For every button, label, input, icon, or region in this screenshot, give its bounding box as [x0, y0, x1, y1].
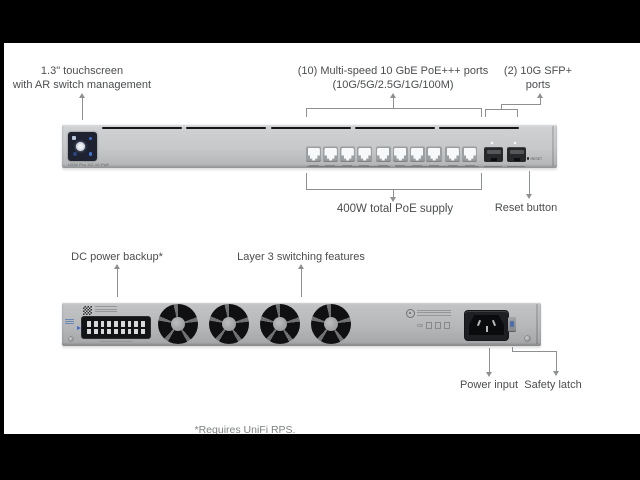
- touchscreen-corner-icon: [89, 152, 93, 156]
- layer3-annotation: Layer 3 switching features: [201, 250, 401, 264]
- dc-pin: [114, 321, 118, 327]
- dc-pin: [94, 321, 98, 327]
- vent-slot: [102, 127, 182, 129]
- vent-slot: [439, 127, 519, 129]
- reset-annotation: Reset button: [466, 201, 586, 215]
- dc-pin: [141, 321, 145, 327]
- dc-pin: [107, 321, 111, 327]
- dc-pin: [134, 329, 138, 335]
- poe-ports-annotation-line1: (10) Multi-speed 10 GbE PoE+++ ports: [283, 64, 503, 78]
- rps-sticker: [65, 319, 79, 333]
- dc-pin: [134, 321, 138, 327]
- dc-pins: [87, 321, 145, 334]
- inlet-cavity: [469, 315, 504, 335]
- dc-pin: [94, 329, 98, 335]
- letterbox-left: [0, 0, 4, 480]
- port-label-strip: [307, 166, 390, 167]
- dc-pin: [121, 321, 125, 327]
- fan-icon: [158, 304, 198, 344]
- leader-line: [489, 348, 490, 373]
- ubiquiti-logo: [406, 309, 415, 318]
- touchscreen-corner-icon: [89, 137, 92, 140]
- fan-icon: [209, 304, 249, 344]
- sfp-led-icon: [491, 142, 493, 144]
- sfp-ports-annotation-line1: (2) 10G SFP+: [488, 64, 588, 78]
- poe-bracket-tick: [306, 108, 307, 117]
- power-inlet: [465, 311, 508, 340]
- cert-icon: [435, 322, 442, 329]
- rj45-jack: [341, 148, 353, 161]
- sfp-port: [484, 147, 503, 162]
- rj45-port: [393, 146, 408, 162]
- label-text-lines: [95, 306, 117, 314]
- rj45-jack: [358, 148, 370, 161]
- leader-line: [512, 351, 557, 352]
- sfp-label-strip: [484, 166, 502, 167]
- dc-pin: [114, 329, 118, 335]
- sfp-tab: [491, 158, 497, 161]
- letterbox-top: [0, 0, 640, 43]
- sfp-bracket-tick: [517, 109, 518, 117]
- arrowhead: [553, 371, 559, 376]
- rj45-ports: [306, 146, 477, 162]
- sfp-port: [507, 147, 526, 162]
- screw-icon: [69, 337, 73, 341]
- vent-slot: [186, 127, 266, 129]
- dc-pin: [107, 329, 111, 335]
- rj45-port-group: [376, 146, 442, 162]
- fan-icon: [311, 304, 351, 344]
- dc-power-connector: [82, 317, 150, 338]
- rj45-port: [376, 146, 391, 162]
- rj45-port: [426, 146, 441, 162]
- rj45-port: [445, 146, 460, 162]
- rj45-jack: [447, 148, 459, 161]
- touchscreen: [68, 132, 97, 161]
- sfp-bracket: [485, 109, 518, 110]
- arrow-right-icon: [77, 326, 81, 330]
- touchscreen-annotation: 1.3" touchscreen with AR switch manageme…: [0, 64, 164, 92]
- dc-pin: [101, 329, 105, 335]
- rj45-jack: [411, 148, 423, 161]
- rj45-port: [462, 146, 477, 162]
- poe-ports-annotation: (10) Multi-speed 10 GbE PoE+++ ports (10…: [283, 64, 503, 92]
- poe-bracket: [306, 108, 482, 109]
- switch-rear-view: CE: [62, 302, 541, 346]
- ce-mark: CE: [417, 323, 423, 328]
- fan-icon: [260, 304, 300, 344]
- touchscreen-annotation-line1: 1.3" touchscreen: [0, 64, 164, 78]
- port-label-strip: [395, 166, 479, 167]
- rj45-port: [306, 146, 321, 162]
- sfp-ports-annotation: (2) 10G SFP+ ports: [488, 64, 588, 92]
- safety-latch-clip: [508, 317, 516, 332]
- rj45-port: [340, 146, 355, 162]
- safety-latch-annotation: Safety latch: [493, 378, 613, 392]
- sfp-slot: [510, 150, 524, 155]
- supply-bracket-tick: [481, 173, 482, 190]
- leader-line: [501, 104, 541, 105]
- supply-bracket-tick: [306, 173, 307, 190]
- dc-backup-annotation: DC power backup*: [35, 250, 199, 264]
- dc-pin: [128, 329, 132, 335]
- vent-slot: [355, 127, 435, 129]
- leader-line: [301, 268, 302, 297]
- sfp-led-icon: [514, 142, 516, 144]
- inlet-pin: [486, 326, 488, 332]
- leader-line: [556, 351, 557, 372]
- rj45-jack: [394, 148, 406, 161]
- leader-line: [393, 97, 394, 108]
- screw-icon: [525, 336, 530, 341]
- leader-line: [529, 171, 530, 195]
- rj45-port: [410, 146, 425, 162]
- rj45-jack: [324, 148, 336, 161]
- poe-bracket-tick: [481, 108, 482, 117]
- sfp-label-strip: [507, 166, 525, 167]
- sfp-ports: [484, 147, 526, 162]
- rj45-port-group: [306, 146, 372, 162]
- rj45-jack: [377, 148, 389, 161]
- poe-supply-annotation: 400W total PoE supply: [295, 202, 495, 216]
- qr-code: [83, 306, 92, 315]
- rj45-jack: [464, 148, 476, 161]
- model-label: USW Pro XG 10 PoE: [68, 162, 109, 167]
- supply-bracket: [306, 189, 482, 190]
- letterbox-bottom: [0, 434, 640, 480]
- dc-pin: [87, 329, 91, 335]
- cert-icon: [444, 322, 451, 329]
- certification-marks: CE: [417, 322, 450, 329]
- dc-pin: [101, 321, 105, 327]
- dc-pin: [128, 321, 132, 327]
- leader-line: [82, 97, 83, 120]
- touchscreen-corner-icon: [72, 136, 76, 140]
- rating-text-line: [468, 343, 504, 346]
- rj45-jack: [308, 148, 320, 161]
- reset-micro-label: RESET: [531, 157, 543, 161]
- reset-button-dot: [527, 157, 530, 160]
- rj45-jack: [428, 148, 440, 161]
- poe-ports-annotation-line2: (10G/5G/2.5G/1G/100M): [283, 78, 503, 92]
- arrowhead: [486, 372, 492, 377]
- leader-line: [117, 268, 118, 297]
- product-diagram: 1.3" touchscreen with AR switch manageme…: [0, 0, 640, 480]
- touchscreen-annotation-line2: with AR switch management: [0, 78, 164, 92]
- dc-pin: [141, 329, 145, 335]
- dc-pin: [121, 329, 125, 335]
- connector-caption-line: [100, 341, 132, 344]
- sfp-ports-annotation-line2: ports: [488, 78, 588, 92]
- sfp-bracket-tick: [485, 109, 486, 117]
- cert-icon: [426, 322, 433, 329]
- rj45-port-group: [445, 146, 477, 162]
- rj45-port: [357, 146, 372, 162]
- dc-pin: [87, 321, 91, 327]
- rj45-port: [323, 146, 338, 162]
- spec-text-lines: [417, 310, 451, 318]
- sfp-slot: [487, 150, 501, 155]
- touchscreen-corner-icon: [73, 152, 77, 156]
- arrowhead: [526, 194, 532, 199]
- touchscreen-center-dot: [76, 142, 85, 151]
- vent-slot: [271, 127, 351, 129]
- sfp-tab: [514, 158, 520, 161]
